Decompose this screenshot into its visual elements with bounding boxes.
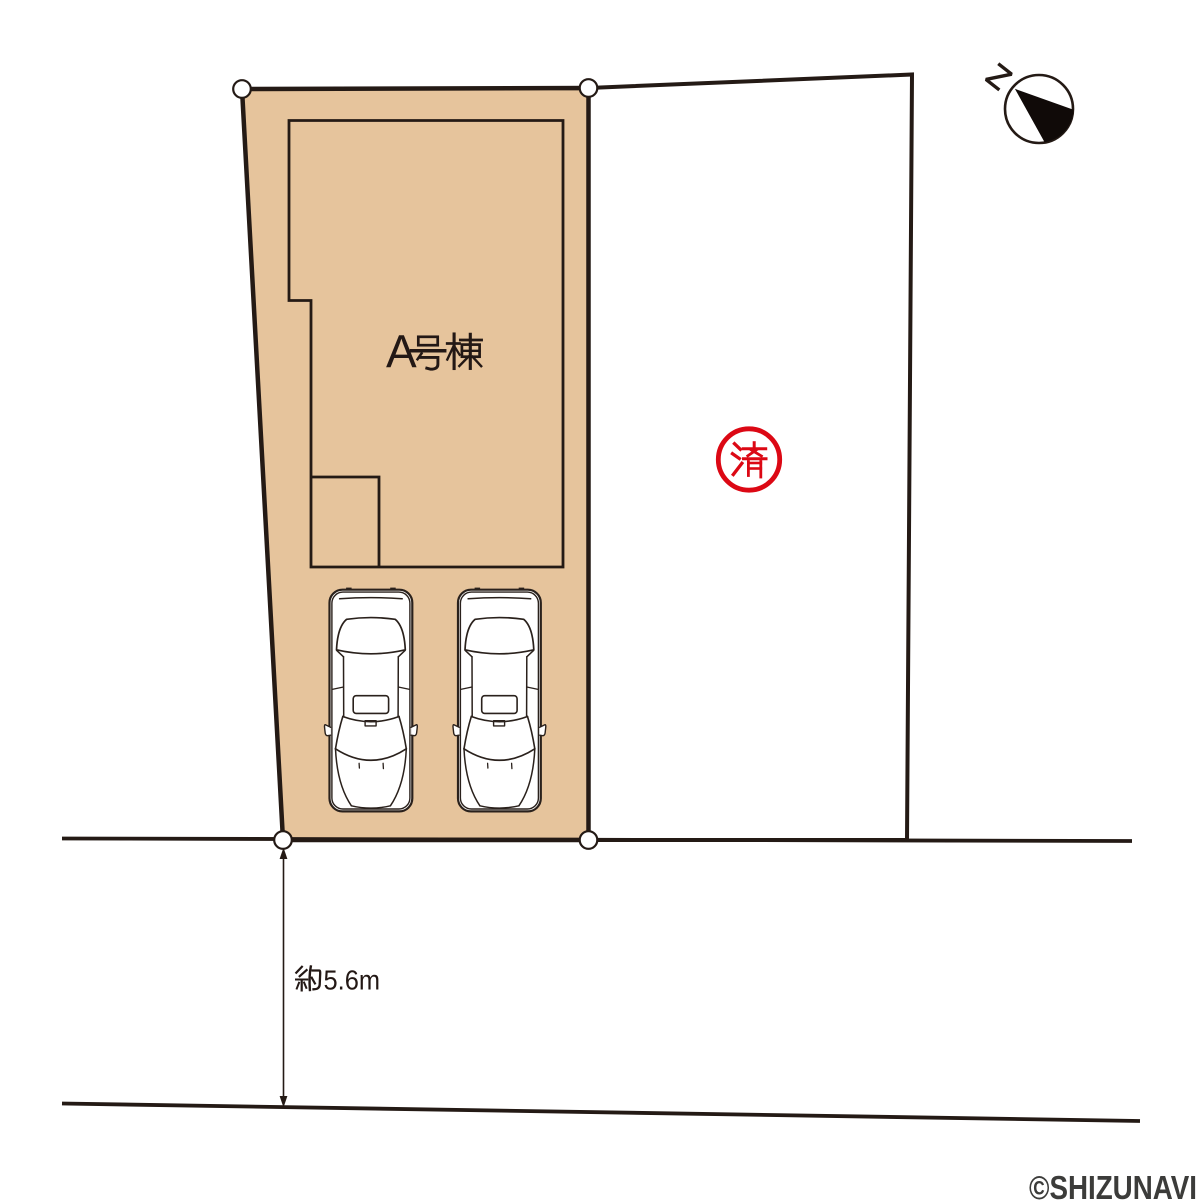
svg-text:5.6m: 5.6m (324, 965, 381, 996)
svg-text:©SHIZUNAVI: ©SHIZUNAVI (1029, 1169, 1197, 1200)
